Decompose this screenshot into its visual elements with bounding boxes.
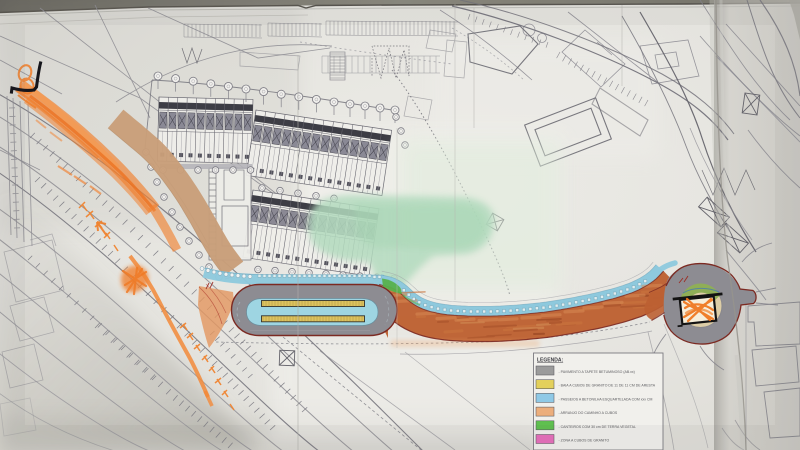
svg-text:- BAIA A CUBOS DE GRANITO DE 1: - BAIA A CUBOS DE GRANITO DE 11 DE 11 CM…	[559, 384, 656, 388]
svg-text:- PASSEIOS A BETONILHA ESQUART: - PASSEIOS A BETONILHA ESQUARTELADA COM …	[559, 397, 653, 401]
svg-text:- ARRANJO DO CAMINHO A CUBOS: - ARRANJO DO CAMINHO A CUBOS	[559, 411, 618, 415]
svg-text:LEGENDA:: LEGENDA:	[537, 358, 563, 364]
svg-text:- PAVIMENTO A TAPETE BETUMINOS: - PAVIMENTO A TAPETE BETUMINOSO (AB.xx)	[559, 370, 635, 374]
